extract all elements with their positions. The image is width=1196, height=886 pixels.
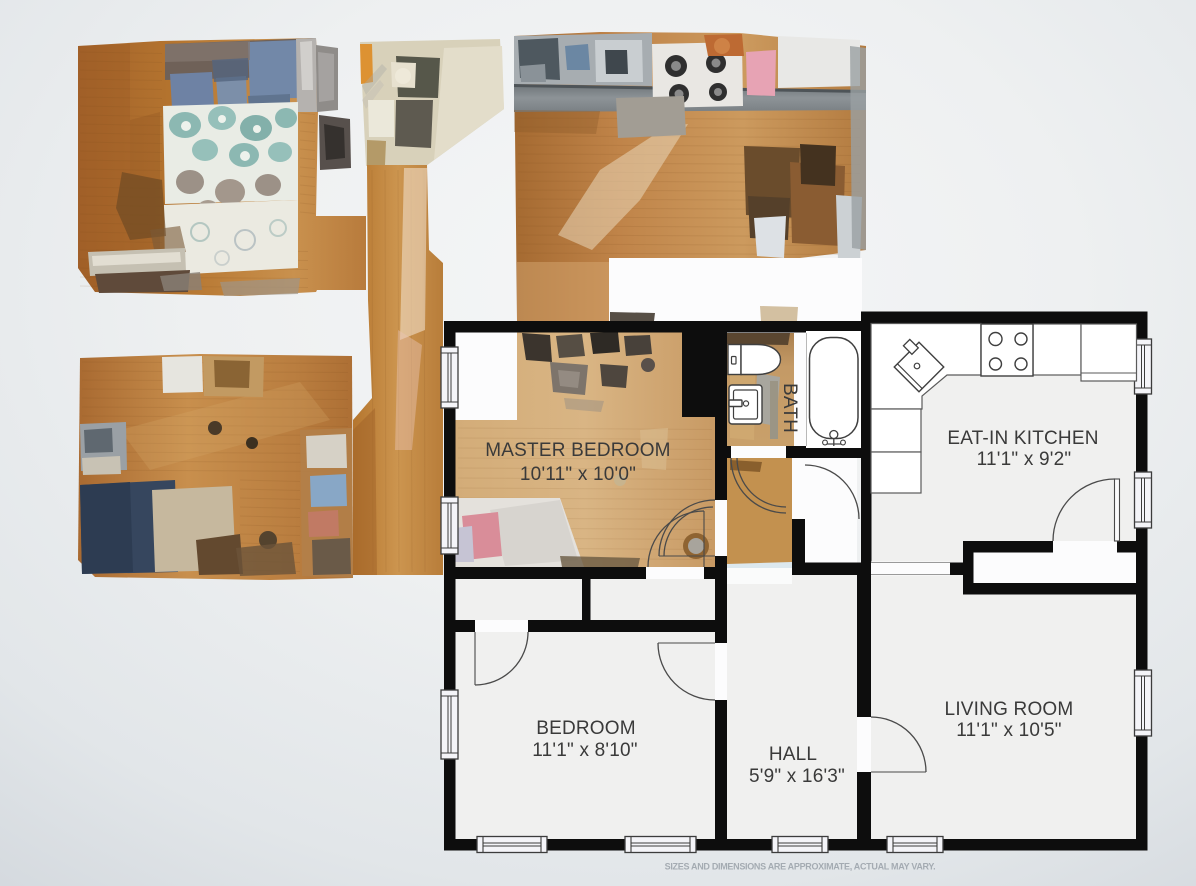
svg-text:11'1" x 8'10": 11'1" x 8'10" (532, 740, 637, 761)
svg-text:LIVING ROOM: LIVING ROOM (945, 699, 1074, 720)
svg-text:11'1" x 9'2": 11'1" x 9'2" (977, 449, 1072, 470)
svg-text:MASTER BEDROOM: MASTER BEDROOM (485, 440, 670, 461)
svg-text:10'11" x 10'0": 10'11" x 10'0" (520, 464, 636, 485)
svg-text:EAT-IN KITCHEN: EAT-IN KITCHEN (947, 428, 1098, 449)
svg-text:BATH: BATH (779, 383, 800, 433)
svg-text:11'1" x 10'5": 11'1" x 10'5" (956, 720, 1061, 741)
svg-text:5'9" x 16'3": 5'9" x 16'3" (749, 766, 845, 787)
svg-text:HALL: HALL (769, 744, 817, 765)
svg-text:BEDROOM: BEDROOM (536, 718, 636, 739)
svg-text:SIZES AND DIMENSIONS ARE APPRO: SIZES AND DIMENSIONS ARE APPROXIMATE, AC… (665, 862, 936, 872)
